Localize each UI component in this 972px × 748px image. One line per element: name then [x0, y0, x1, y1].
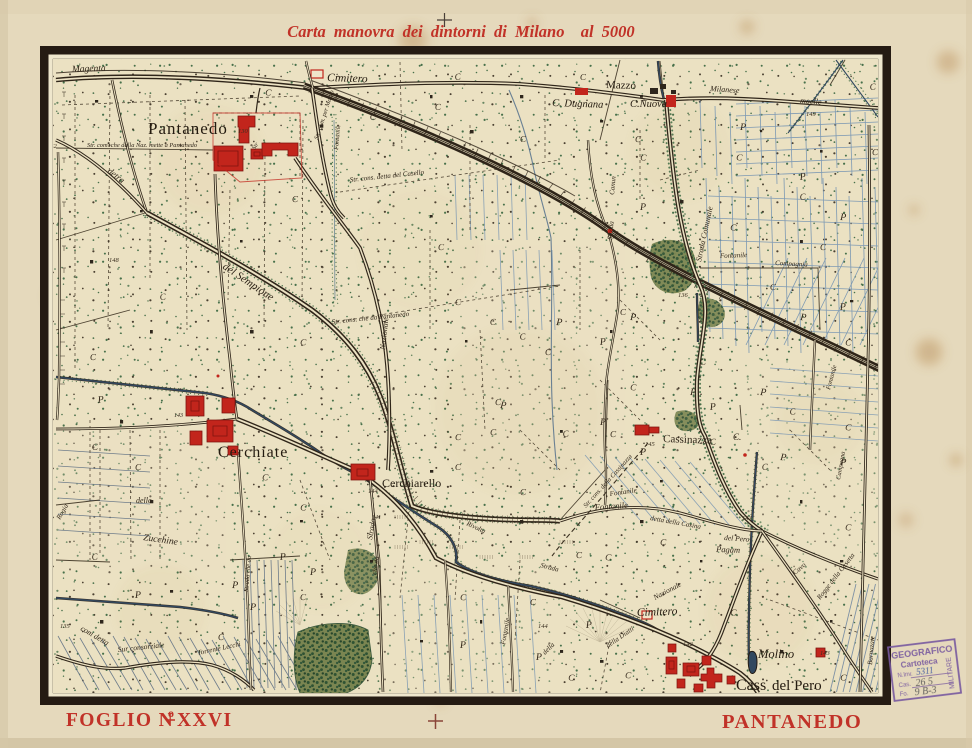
svg-text:144: 144: [368, 488, 379, 495]
svg-text:144: 144: [538, 623, 549, 630]
svg-text:143: 143: [820, 650, 831, 657]
svg-text:136: 136: [678, 292, 689, 299]
svg-text:145: 145: [645, 441, 656, 448]
svg-text:P: P: [278, 552, 286, 563]
svg-text:Cass: Cass: [736, 677, 766, 694]
svg-text:P: P: [599, 417, 606, 428]
svg-text:delle: delle: [136, 496, 152, 505]
svg-text:C: C: [218, 632, 225, 642]
svg-text:del Pero: del Pero: [772, 678, 822, 694]
svg-text:P: P: [839, 212, 847, 223]
svg-text:P: P: [689, 387, 696, 398]
svg-text:P: P: [708, 402, 716, 414]
svg-text:Fontanile: Fontanile: [719, 251, 747, 260]
svg-text:143: 143: [742, 515, 753, 522]
svg-text:P: P: [839, 302, 847, 313]
svg-text:P: P: [309, 567, 316, 578]
svg-text:C: C: [820, 242, 827, 252]
svg-text:Pagam: Pagam: [715, 544, 740, 555]
svg-text:moelle: moelle: [800, 96, 822, 106]
svg-text:XXVI: XXVI: [177, 710, 232, 731]
svg-text:P: P: [231, 580, 238, 591]
svg-text:P: P: [555, 317, 563, 329]
svg-text:P: P: [639, 202, 646, 213]
svg-text:FOGLIO N: FOGLIO N: [66, 710, 174, 731]
svg-text:C: C: [545, 347, 552, 357]
svg-text:Cerchiarello: Cerchiarello: [382, 476, 441, 490]
svg-text:P: P: [96, 394, 104, 406]
svg-text:P: P: [798, 171, 806, 183]
svg-text:P: P: [759, 387, 767, 399]
svg-text:C.: C.: [733, 432, 741, 442]
svg-text:Str. com. che dalla Naz. mette: Str. com. che dalla Naz. mette a Pantane…: [87, 142, 197, 149]
svg-text:148: 148: [109, 257, 120, 264]
svg-text:Molino: Molino: [757, 647, 794, 661]
svg-text:P: P: [639, 447, 646, 458]
svg-text:C: C: [300, 592, 307, 602]
svg-text:P: P: [799, 312, 807, 324]
svg-text:C: C: [455, 297, 462, 307]
svg-text:PANTANEDO: PANTANEDO: [722, 711, 862, 733]
svg-text:141: 141: [372, 514, 381, 521]
svg-text:Fo.: Fo.: [900, 691, 910, 698]
svg-text:P: P: [739, 122, 746, 133]
svg-text:Canun: Canun: [608, 175, 618, 195]
svg-text:o: o: [168, 706, 174, 720]
svg-text:P: P: [598, 337, 606, 348]
svg-text:Pantanedo: Pantanedo: [148, 119, 228, 138]
svg-text:P: P: [134, 590, 141, 601]
svg-text:C. Dugnana: C. Dugnana: [552, 98, 604, 111]
svg-text:Mazzo: Mazzo: [606, 79, 637, 92]
svg-text:143: 143: [174, 412, 183, 419]
svg-text:P: P: [535, 652, 542, 663]
svg-text:C: C: [438, 242, 445, 252]
svg-text:Cerchiate: Cerchiate: [218, 444, 288, 461]
svg-text:Cassinazza: Cassinazza: [663, 433, 712, 447]
svg-text:Magenta: Magenta: [71, 64, 106, 75]
svg-text:P: P: [629, 312, 637, 323]
svg-text:135: 135: [60, 623, 71, 630]
svg-text:130: 130: [238, 128, 249, 135]
svg-text:P: P: [459, 640, 467, 651]
svg-text:C.Nuova: C.Nuova: [630, 99, 667, 110]
svg-text:Carta manovra dei dintorni di: Carta manovra dei dintorni di Milano al …: [287, 22, 634, 41]
svg-text:P: P: [249, 602, 256, 613]
svg-text:P: P: [779, 452, 787, 464]
svg-text:P: P: [584, 620, 592, 631]
svg-text:142: 142: [683, 641, 694, 648]
svg-text:C: C: [292, 194, 299, 204]
svg-text:Cimitero: Cimitero: [637, 606, 678, 619]
svg-text:C: C: [576, 550, 583, 560]
svg-text:del Pero: del Pero: [724, 533, 750, 544]
svg-text:Cimitero: Cimitero: [327, 72, 368, 85]
svg-text:149: 149: [806, 111, 817, 118]
svg-text:C: C: [90, 352, 97, 362]
svg-text:C: C: [520, 487, 527, 497]
svg-text:Strada: Strada: [606, 220, 616, 240]
svg-text:P: P: [839, 457, 847, 468]
svg-text:P: P: [499, 400, 507, 412]
